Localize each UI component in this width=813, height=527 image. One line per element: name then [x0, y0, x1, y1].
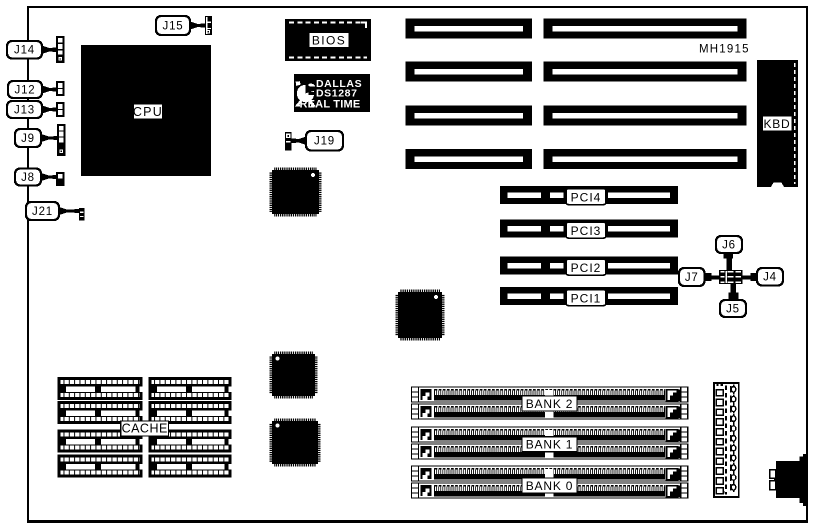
svg-text:J19: J19 — [314, 136, 335, 148]
svg-text:CACHE: CACHE — [122, 421, 168, 435]
svg-text:PCI3: PCI3 — [571, 224, 602, 238]
svg-text:BANK 2: BANK 2 — [526, 397, 574, 411]
svg-text:BIOS: BIOS — [312, 33, 346, 47]
svg-text:J15: J15 — [163, 20, 184, 32]
svg-text:BANK 1: BANK 1 — [526, 438, 574, 452]
svg-text:J7: J7 — [685, 272, 699, 284]
svg-text:MH1915: MH1915 — [699, 44, 750, 56]
svg-text:PCI1: PCI1 — [571, 291, 602, 305]
svg-text:PCI4: PCI4 — [571, 190, 602, 204]
svg-text:J4: J4 — [763, 272, 777, 284]
svg-text:J5: J5 — [726, 303, 740, 315]
svg-text:PCI2: PCI2 — [571, 261, 602, 275]
svg-text:J12: J12 — [15, 84, 36, 96]
svg-text:J21: J21 — [32, 206, 53, 218]
svg-text:J9: J9 — [21, 133, 35, 145]
svg-text:J6: J6 — [722, 239, 736, 251]
svg-text:DS1287: DS1287 — [316, 87, 358, 99]
svg-text:J14: J14 — [14, 45, 35, 57]
svg-text:REAL TIME: REAL TIME — [300, 99, 361, 111]
svg-text:J8: J8 — [21, 172, 35, 184]
svg-text:J13: J13 — [14, 104, 35, 116]
svg-text:KBD: KBD — [763, 117, 790, 131]
svg-text:BANK 0: BANK 0 — [526, 479, 574, 493]
svg-text:CPU: CPU — [133, 105, 163, 119]
